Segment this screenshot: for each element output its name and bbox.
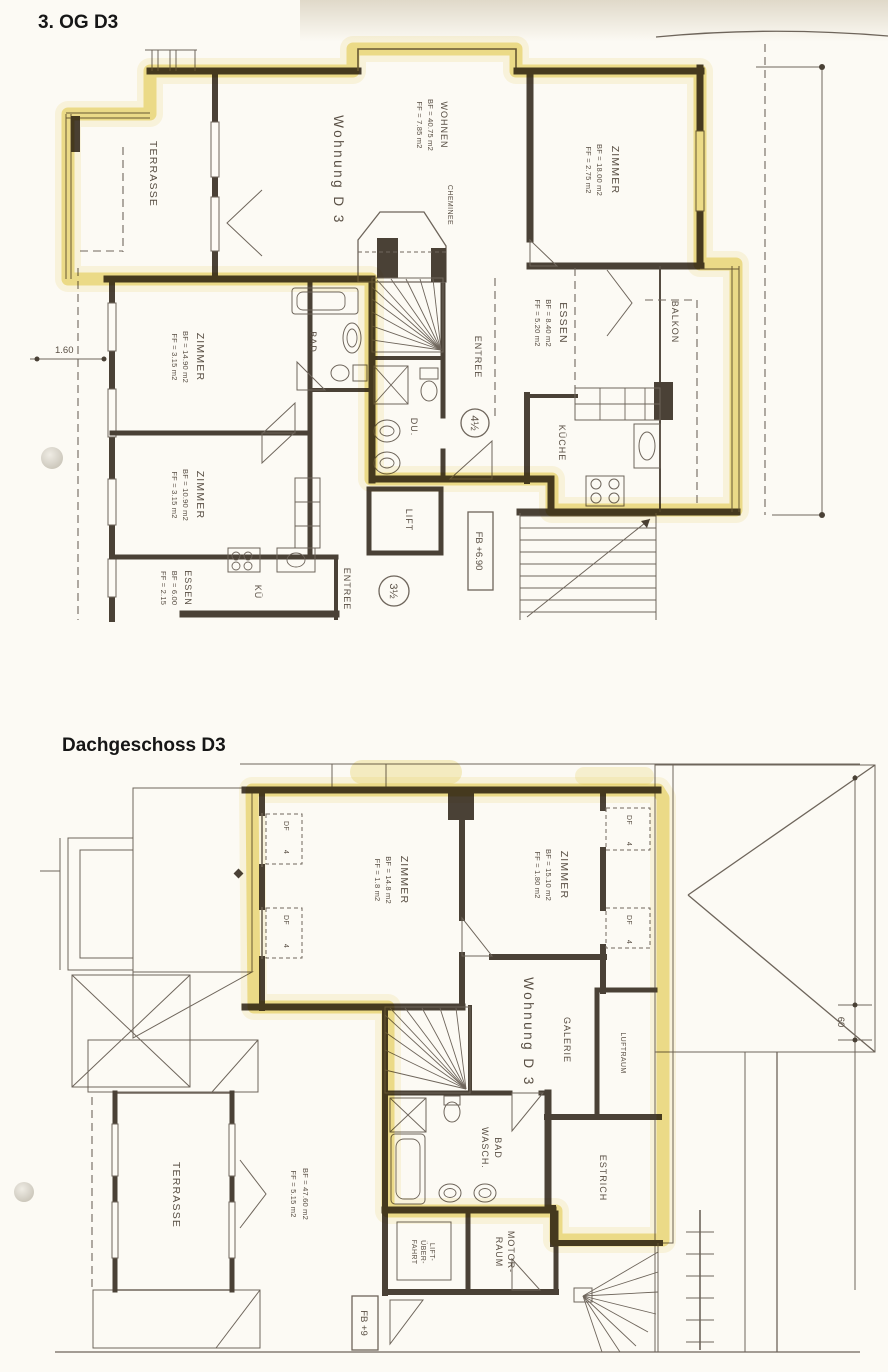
svg-text:ESSEN: ESSEN — [183, 570, 193, 606]
og-terrace-outline — [66, 50, 197, 279]
svg-text:ZIMMER: ZIMMER — [194, 333, 206, 382]
room-label-kue: KÜ — [253, 585, 263, 600]
room-label-estrich: ESTRICH — [598, 1155, 608, 1202]
svg-text:FF = 7.85 m2: FF = 7.85 m2 — [415, 101, 424, 148]
og-dimension-left — [30, 357, 107, 362]
og-kitchen-fixtures — [575, 388, 660, 506]
svg-text:FF = 3.15 m2: FF = 3.15 m2 — [170, 471, 179, 518]
dormer-label-df-2: DF — [282, 915, 289, 925]
dimension-160: 1.60 — [55, 345, 74, 356]
apartment-label-og: Wohnung D 3 — [331, 115, 346, 225]
room-label-bad-wasch: BAD WASCH. — [480, 1127, 503, 1169]
terrasse-stats-dg: BF = 47.60 m2 FF = 5.15 m2 — [289, 1168, 310, 1220]
plan-og-title: 3. OG D3 — [38, 12, 118, 34]
plan-dg: ZIMMER BF = 14.8 m2 FF = 1.8 m2 ZIMMER B… — [14, 764, 875, 1352]
svg-text:BF = 14.90 m2: BF = 14.90 m2 — [181, 331, 190, 383]
plan-dg-title: Dachgeschoss D3 — [62, 735, 226, 757]
room-label-terrasse-dg: TERRASSE — [170, 1162, 182, 1228]
og-common-stairs — [520, 513, 656, 620]
dormer-num-2: 4 — [282, 944, 289, 948]
svg-text:ZIMMER: ZIMMER — [194, 471, 206, 520]
og-doors — [227, 190, 632, 479]
og-highlighter-path — [68, 49, 736, 510]
room-count-45: 4½ — [468, 415, 480, 430]
dormer-num-4: 4 — [625, 940, 632, 944]
room-label-kueche: KÜCHE — [557, 425, 567, 462]
svg-text:RAUM: RAUM — [494, 1237, 504, 1268]
svg-text:ESSEN: ESSEN — [557, 302, 569, 344]
floorplan-drawing: TERRASSE Wohnung D 3 WOHNEN BF = 40.75 m… — [0, 0, 888, 1372]
svg-text:FF = 3.15 m2: FF = 3.15 m2 — [170, 333, 179, 380]
svg-text:ZIMMER: ZIMMER — [398, 856, 410, 905]
room-label-zimmer-w1: ZIMMER BF = 14.90 m2 FF = 3.15 m2 — [170, 331, 206, 383]
room-label-luftraum: LUFTRAUM — [619, 1032, 626, 1073]
svg-text:BAD: BAD — [493, 1137, 503, 1159]
room-label-zimmer-right: ZIMMER BF = 15.10 m2 FF = 1.80 m2 — [533, 849, 570, 901]
svg-text:BF = 8.40 m2: BF = 8.40 m2 — [544, 299, 553, 347]
dormer-label-df-1: DF — [282, 821, 289, 831]
room-label-lift: LIFT — [404, 509, 414, 532]
svg-text:WOHNEN: WOHNEN — [439, 102, 449, 149]
scan-artifact-blob-2 — [14, 1182, 34, 1202]
room-count-35: 3½ — [387, 583, 399, 598]
room-label-motor-raum: MOTOR- RAUM — [494, 1231, 516, 1273]
dormer-label-df-4: DF — [625, 915, 632, 925]
dormer-label-df-3: DF — [625, 815, 632, 825]
level-label-og: FB +6.90 — [473, 532, 484, 571]
label-cheminee: CHEMINEE — [446, 185, 453, 225]
room-label-zimmer-ne: ZIMMER BF = 18.00 m2 FF = 2.75 m2 — [584, 144, 621, 196]
svg-text:LIFT-: LIFT- — [428, 1243, 435, 1262]
svg-text:ZIMMER: ZIMMER — [609, 146, 621, 195]
og-kitchen-south-fixtures — [228, 548, 315, 572]
svg-text:WASCH.: WASCH. — [480, 1127, 490, 1169]
dormer-num-1: 4 — [282, 850, 289, 854]
svg-text:BF = 15.10 m2: BF = 15.10 m2 — [544, 849, 553, 901]
page-curl-line — [656, 31, 888, 37]
svg-text:BF = 10.90 m2: BF = 10.90 m2 — [181, 469, 190, 521]
svg-text:MOTOR-: MOTOR- — [506, 1231, 516, 1273]
svg-text:BF = 6.00: BF = 6.00 — [170, 571, 179, 606]
svg-text:ZIMMER: ZIMMER — [558, 851, 570, 900]
svg-text:BF = 14.8 m2: BF = 14.8 m2 — [384, 856, 393, 904]
svg-text:FF = 5.15 m2: FF = 5.15 m2 — [289, 1170, 298, 1217]
svg-text:ÜBER-: ÜBER- — [419, 1240, 427, 1264]
room-label-balkon: BALKON — [670, 301, 680, 344]
svg-text:FF = 1.8 m2: FF = 1.8 m2 — [373, 859, 382, 902]
svg-text:FF = 5.20 m2: FF = 5.20 m2 — [533, 299, 542, 346]
room-label-galerie: GALERIE — [562, 1017, 572, 1063]
room-label-essen-east: ESSEN BF = 8.40 m2 FF = 5.20 m2 — [533, 299, 569, 347]
dg-terrace — [92, 1093, 235, 1290]
scanned-floorplan-page: 3. OG D3 Dachgeschoss D3 — [0, 0, 888, 1372]
room-label-du: DU. — [409, 418, 419, 437]
og-bath-fixtures — [292, 288, 367, 381]
room-label-terrasse: TERRASSE — [147, 141, 159, 207]
svg-text:FF = 1.80 m2: FF = 1.80 m2 — [533, 851, 542, 898]
svg-text:FF = 2.15: FF = 2.15 — [159, 571, 168, 605]
room-label-lift-shaft: LIFT- ÜBER- FAHRT — [410, 1240, 435, 1265]
svg-text:FAHRT: FAHRT — [410, 1240, 417, 1265]
level-label-dg: FB +9 — [358, 1310, 369, 1336]
svg-text:FF = 2.75 m2: FF = 2.75 m2 — [584, 146, 593, 193]
dg-roof-hatching — [40, 764, 875, 1352]
room-label-entree: ENTREE — [473, 336, 483, 379]
apartment-label-dg: Wohnung D 3 — [521, 977, 536, 1087]
plan-og: TERRASSE Wohnung D 3 WOHNEN BF = 40.75 m… — [30, 44, 825, 620]
room-label-wohnen: WOHNEN BF = 40.75 m2 FF = 7.85 m2 — [415, 99, 449, 151]
room-label-zimmer-w2: ZIMMER BF = 10.90 m2 FF = 3.15 m2 — [170, 469, 206, 521]
dg-bottom-stairs — [574, 1243, 658, 1352]
room-label-essen-south: ESSEN BF = 6.00 FF = 2.15 — [159, 570, 193, 606]
scan-artifact-blob — [41, 447, 63, 469]
og-dimension-right — [756, 64, 825, 518]
dormer-num-3: 4 — [625, 842, 632, 846]
room-label-entree2: ENTREE — [342, 568, 352, 611]
room-label-zimmer-left: ZIMMER BF = 14.8 m2 FF = 1.8 m2 — [373, 856, 410, 905]
svg-text:BF = 47.60 m2: BF = 47.60 m2 — [301, 1168, 310, 1220]
dimension-60: 60 — [835, 1017, 846, 1028]
svg-text:BF = 18.00 m2: BF = 18.00 m2 — [595, 144, 604, 196]
room-label-bad: BAD — [308, 331, 318, 353]
svg-text:BF = 40.75 m2: BF = 40.75 m2 — [426, 99, 435, 151]
dg-dormer-windows — [266, 808, 650, 958]
dg-dimension-right — [838, 775, 872, 1290]
